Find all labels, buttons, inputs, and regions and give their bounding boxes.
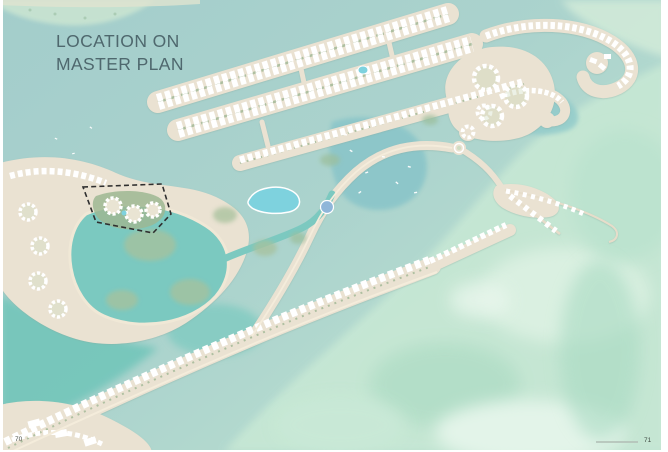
page-number-left: 70 — [15, 436, 22, 443]
brochure-page: LOCATION ON MASTER PLAN 70 71 — [0, 0, 668, 452]
page-title-line1: LOCATION ON — [56, 30, 184, 53]
footer-fine-print-line — [596, 441, 638, 443]
page-title-line2: MASTER PLAN — [56, 53, 184, 76]
small-pool — [358, 66, 368, 74]
dome-building — [321, 201, 334, 214]
page-number-right: 71 — [644, 437, 651, 444]
page-title: LOCATION ON MASTER PLAN — [56, 30, 184, 76]
